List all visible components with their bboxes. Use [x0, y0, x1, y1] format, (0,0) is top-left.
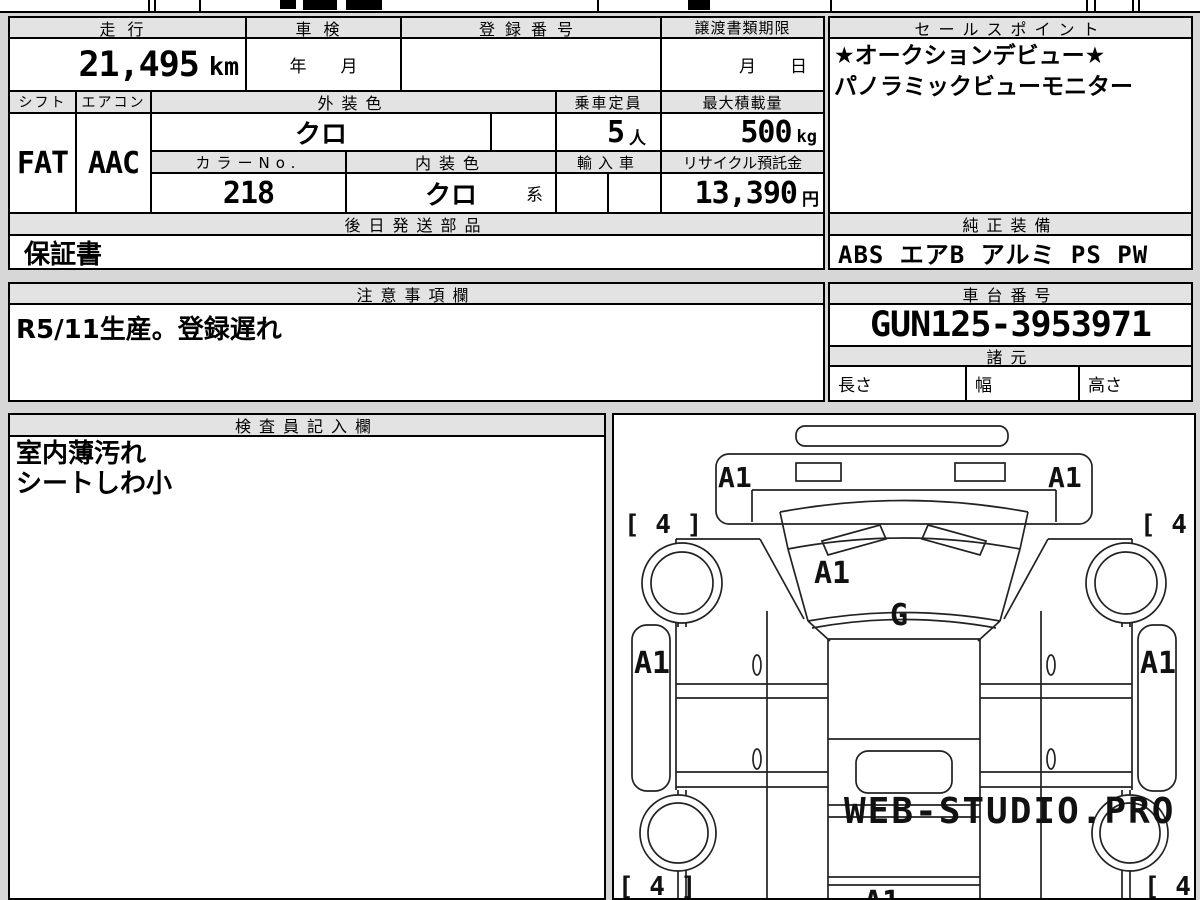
- divider: [154, 0, 156, 11]
- spec-height-label: 高さ: [1088, 371, 1122, 396]
- later-parts-header-label: 後日発送部品: [344, 212, 488, 236]
- color-no-value-cell: 218: [150, 172, 347, 214]
- wheel-front-right: [1086, 543, 1166, 623]
- equipment-header: 純正装備: [828, 212, 1193, 236]
- door-handle-fl: [753, 655, 761, 675]
- exterior-color-header: 外装色: [150, 90, 557, 114]
- chassis-value-cell: GUN125-3953971: [828, 303, 1193, 347]
- transfer-header-label: 譲渡書類期限: [694, 17, 790, 38]
- spec-width-label: 幅: [975, 371, 992, 396]
- divider: [1094, 0, 1096, 11]
- wheel-front-left: [642, 543, 722, 623]
- auction-sheet: 走行 車検 登録番号 譲渡書類期限 21,495 km 年 月 月 日 シフト …: [0, 0, 1200, 900]
- exterior-color-value: クロ: [295, 114, 347, 151]
- notes-header-label: 注意事項欄: [356, 282, 476, 305]
- door-inner-lines: [767, 611, 1041, 898]
- specs-header: 諸元: [828, 345, 1193, 367]
- import-header-label: 輸入車: [577, 152, 640, 173]
- tire-mark-rear-left: [ 4 ]: [618, 872, 696, 898]
- watermark: WEB-STUDIO.PRO: [844, 791, 1175, 832]
- divider: [1086, 0, 1088, 11]
- notes-body: R5/11生産。登録遅れ: [8, 303, 825, 402]
- transfer-value: 月 日: [739, 52, 807, 77]
- equipment-value-cell: ABS エアB アルミ PS PW: [828, 234, 1193, 270]
- inspector-header-label: 検査員記入欄: [235, 413, 379, 437]
- color-no-header-label: カラーNo.: [196, 152, 302, 173]
- equipment-header-label: 純正装備: [962, 212, 1058, 236]
- cropped-table-row: [0, 0, 1200, 13]
- max-load-header: 最大積載量: [660, 90, 825, 114]
- divider: [830, 0, 832, 11]
- bumper-inner-line: [752, 490, 1056, 522]
- shift-header-label: シフト: [19, 92, 67, 112]
- recycle-fee-value-cell: 13,390 円: [660, 172, 825, 214]
- sales-point-line1: ★オークションデビュー★: [834, 41, 1105, 72]
- import-value-cell-2: [607, 172, 662, 214]
- exterior-color-extra-cell: [490, 112, 557, 152]
- car-diagram-panel: WEB-STUDIO.PRO A1 A1 A1 G A1 A1 A1 [ 4 ]…: [612, 413, 1196, 900]
- door-seams-upper: [676, 684, 1132, 698]
- interior-color-suffix: 系: [526, 181, 543, 206]
- shaken-value: 年 月: [290, 52, 358, 77]
- inspector-line1: 室内薄汚れ: [16, 439, 146, 469]
- divider: [1138, 0, 1140, 11]
- interior-color-header: 内装色: [345, 150, 557, 174]
- shift-value-cell: FAT: [8, 112, 77, 214]
- shaken-value-cell: 年 月: [245, 37, 402, 92]
- interior-color-value-cell: クロ 系: [345, 172, 557, 214]
- spec-length-label: 長さ: [838, 371, 872, 396]
- sunroof: [856, 751, 952, 793]
- wheel-rear-left: [640, 795, 716, 871]
- load-value: 500: [740, 115, 791, 150]
- max-load-value-cell: 500 kg: [660, 112, 825, 152]
- later-parts-value: 保証書: [24, 234, 102, 270]
- mark-door-left: A1: [634, 646, 670, 681]
- chassis-number: GUN125-3953971: [870, 305, 1151, 345]
- cut-glyph: [346, 0, 382, 10]
- exterior-color-value-cell: クロ: [150, 112, 492, 152]
- load-header-label: 最大積載量: [702, 92, 782, 113]
- tire-mark-front-left: [ 4 ]: [624, 510, 702, 540]
- capacity-header-label: 乗車定員: [574, 92, 642, 113]
- aircon-value: AAC: [88, 146, 139, 181]
- door-handle-rl: [753, 749, 761, 769]
- cut-glyph: [688, 0, 710, 10]
- inspector-header: 検査員記入欄: [8, 413, 606, 437]
- mileage-header: 走行: [8, 16, 247, 39]
- color-no-value: 218: [223, 176, 274, 211]
- later-parts-header: 後日発送部品: [8, 212, 825, 236]
- mark-rear: A1: [864, 885, 900, 898]
- spec-length-cell: 長さ: [828, 365, 967, 402]
- import-value-cell-1: [555, 172, 609, 214]
- tire-mark-front-right: [ 4 ]: [1140, 510, 1194, 540]
- divider: [199, 0, 201, 11]
- bumper-slot-left: [796, 463, 841, 481]
- capacity-value-cell: 5 人: [555, 112, 662, 152]
- divider: [597, 0, 599, 11]
- aircon-header: エアコン: [75, 90, 152, 114]
- color-no-header: カラーNo.: [150, 150, 347, 174]
- shaken-header-label: 車検: [295, 16, 351, 39]
- inspector-line2: シートしわ小: [16, 469, 172, 499]
- aircon-value-cell: AAC: [75, 112, 152, 214]
- interior-header-label: 内装色: [415, 150, 487, 174]
- registration-header-label: 登録番号: [479, 16, 583, 39]
- mileage-value: 21,495: [78, 45, 198, 85]
- transfer-value-cell: 月 日: [660, 37, 825, 92]
- aircon-header-label: エアコン: [82, 92, 146, 112]
- interior-color-value: クロ: [425, 175, 477, 212]
- front-top-bar: [796, 426, 1008, 446]
- body-sides: [676, 539, 1132, 790]
- registration-header: 登録番号: [400, 16, 662, 39]
- recycle-header-label: リサイクル預託金: [683, 152, 802, 173]
- mark-bumper-left: A1: [718, 461, 752, 494]
- later-parts-value-cell: 保証書: [8, 234, 825, 270]
- shift-header: シフト: [8, 90, 77, 114]
- mark-hood: A1: [814, 556, 850, 591]
- door-handle-rr: [1047, 749, 1055, 769]
- mark-bumper-right: A1: [1048, 461, 1082, 494]
- exterior-header-label: 外装色: [317, 90, 389, 114]
- inspector-body: 室内薄汚れ シートしわ小: [8, 435, 606, 900]
- capacity-unit: 人: [629, 124, 646, 149]
- shaken-header: 車検: [245, 16, 402, 39]
- car-diagram: WEB-STUDIO.PRO A1 A1 A1 G A1 A1 A1 [ 4 ]…: [614, 415, 1194, 898]
- registration-value-cell: [400, 37, 662, 92]
- mileage-header-label: 走行: [99, 16, 155, 39]
- equipment-value: ABS エアB アルミ PS PW: [838, 235, 1148, 270]
- divider: [1132, 0, 1134, 11]
- spec-height-cell: 高さ: [1078, 365, 1193, 402]
- chassis-header-label: 車台番号: [962, 282, 1058, 305]
- spec-width-cell: 幅: [965, 365, 1080, 402]
- bumper-slot-right: [955, 463, 1005, 481]
- shift-value: FAT: [17, 146, 68, 181]
- cut-glyph: [303, 0, 337, 10]
- mileage-unit: km: [209, 52, 239, 81]
- mileage-value-cell: 21,495 km: [8, 37, 247, 92]
- sales-point-body: ★オークションデビュー★ パノラミックビューモニター: [828, 37, 1193, 214]
- door-seams-lower: [676, 772, 1132, 787]
- import-header: 輸入車: [555, 150, 662, 174]
- mark-glass: G: [890, 598, 908, 633]
- recycle-fee-header: リサイクル預託金: [660, 150, 825, 174]
- sales-point-header: セールスポイント: [828, 16, 1193, 39]
- recycle-fee-unit: 円: [802, 185, 819, 210]
- capacity-value: 5: [607, 115, 624, 150]
- door-handle-fr: [1047, 655, 1055, 675]
- tire-mark-rear-right: [ 4 ]: [1144, 872, 1194, 898]
- specs-header-label: 諸元: [986, 345, 1034, 367]
- roof-lines: [828, 639, 980, 898]
- sales-point-header-label: セールスポイント: [914, 16, 1106, 39]
- cut-glyph: [280, 0, 296, 9]
- front-bumper: [716, 454, 1092, 524]
- mark-door-right: A1: [1140, 646, 1176, 681]
- load-unit: kg: [797, 127, 817, 147]
- chassis-header: 車台番号: [828, 282, 1193, 305]
- notes-header: 注意事項欄: [8, 282, 825, 305]
- recycle-fee-value: 13,390: [695, 176, 797, 211]
- transfer-deadline-header: 譲渡書類期限: [660, 16, 825, 39]
- sales-point-line2: パノラミックビューモニター: [834, 72, 1133, 103]
- divider: [148, 0, 150, 11]
- capacity-header: 乗車定員: [555, 90, 662, 114]
- notes-text: R5/11生産。登録遅れ: [16, 309, 282, 346]
